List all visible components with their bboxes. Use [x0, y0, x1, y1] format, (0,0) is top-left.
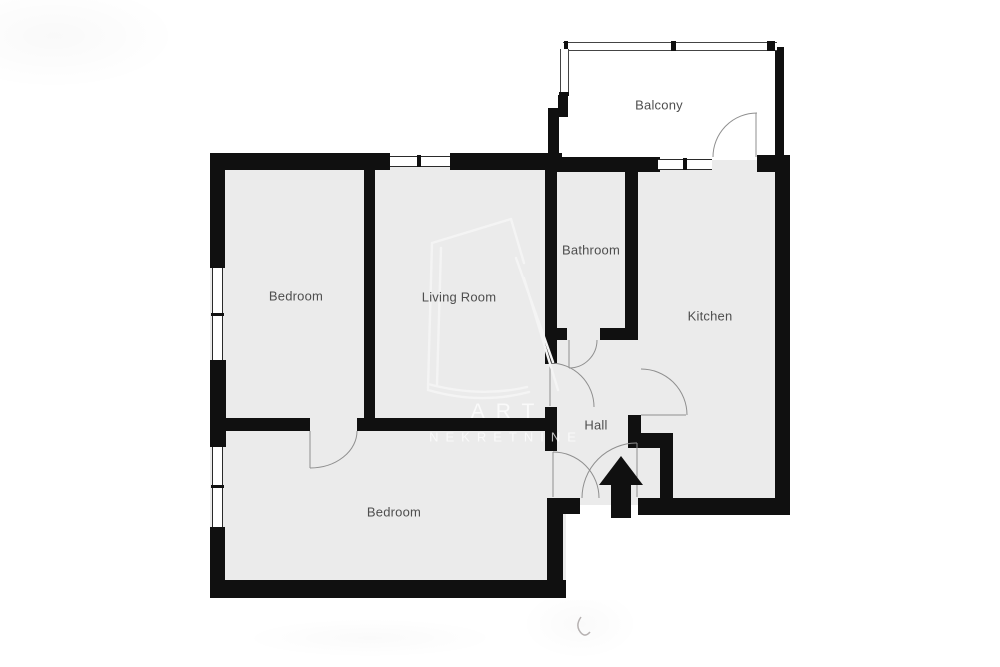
- window-mullion: [417, 155, 421, 167]
- wall-segment: [625, 168, 638, 340]
- wall-segment: [210, 153, 225, 268]
- room-label-kitchen: Kitchen: [688, 309, 733, 324]
- wall-segment: [547, 498, 563, 598]
- wall-segment: [548, 157, 660, 172]
- wall-segment: [210, 418, 310, 431]
- watermark-text-line2: NEKRETNINE: [429, 430, 583, 445]
- window-mullion: [211, 313, 224, 316]
- railing-post: [767, 41, 775, 51]
- wall-segment: [210, 360, 226, 447]
- entrance-arrow-stem: [611, 484, 631, 518]
- paper-smudge: [520, 600, 640, 660]
- wall-segment: [775, 47, 784, 157]
- room-label-hall: Hall: [584, 418, 607, 433]
- wall-segment: [628, 415, 641, 435]
- room-label-bedroom-bottom: Bedroom: [367, 505, 421, 520]
- wall-segment: [548, 108, 559, 157]
- room-label-bedroom-top: Bedroom: [269, 289, 323, 304]
- balcony-railing: [560, 49, 569, 96]
- wall-segment: [210, 580, 566, 598]
- wall-segment: [660, 448, 673, 499]
- wall-segment: [638, 498, 778, 515]
- railing-post: [671, 41, 676, 51]
- watermark-text-line1: ART: [471, 400, 546, 424]
- room-label-living-room: Living Room: [422, 290, 496, 305]
- wall-segment: [563, 498, 580, 514]
- wall-segment: [364, 168, 375, 419]
- paper-smudge: [0, 0, 180, 90]
- entrance-arrow-icon: [599, 456, 643, 485]
- wall-segment: [548, 328, 567, 340]
- wall-segment: [775, 155, 790, 515]
- paper-smudge: [578, 617, 590, 635]
- railing-post: [559, 92, 569, 96]
- paper-smudge: [240, 618, 500, 658]
- window-mullion: [683, 158, 687, 170]
- room-label-bathroom: Bathroom: [562, 243, 620, 258]
- floorplan-image: Balcony Bedroom Living Room Bathroom Kit…: [0, 0, 1000, 667]
- wall-segment: [628, 433, 673, 448]
- wall-segment: [210, 153, 390, 170]
- door-arc-balcony: [713, 113, 757, 157]
- balcony-railing: [563, 42, 777, 51]
- window-mullion: [211, 485, 224, 488]
- floor-main-left: [210, 160, 566, 598]
- room-label-balcony: Balcony: [635, 98, 683, 113]
